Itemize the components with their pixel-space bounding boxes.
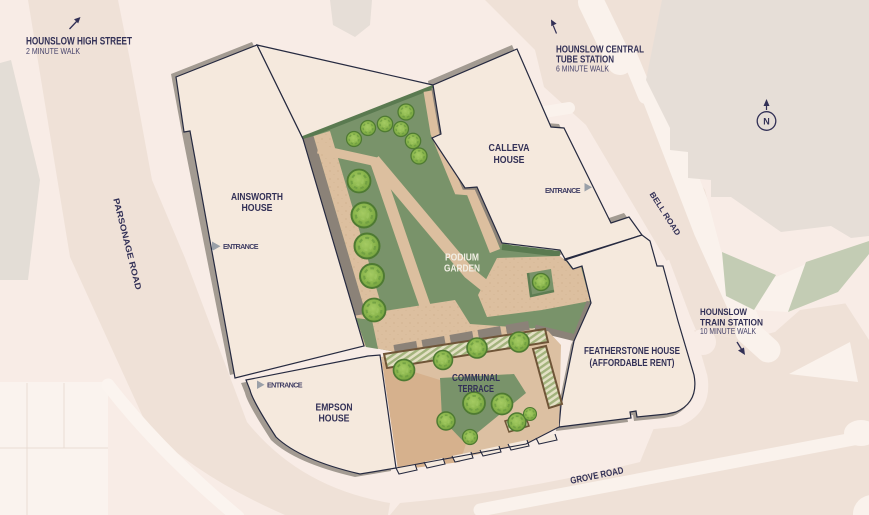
svg-text:TERRACE: TERRACE [458, 384, 494, 395]
svg-text:TRAIN STATION: TRAIN STATION [700, 318, 763, 328]
svg-text:ENTRANCE: ENTRANCE [223, 242, 259, 251]
svg-text:FEATHERSTONE HOUSE: FEATHERSTONE HOUSE [584, 345, 680, 357]
svg-text:HOUSE: HOUSE [319, 413, 350, 425]
svg-text:HOUNSLOW: HOUNSLOW [700, 307, 747, 317]
svg-text:10 MINUTE WALK: 10 MINUTE WALK [700, 327, 757, 336]
svg-text:ENTRANCE: ENTRANCE [267, 381, 303, 390]
svg-text:N: N [763, 117, 770, 127]
svg-text:PODIUM: PODIUM [445, 253, 479, 264]
svg-text:HOUSE: HOUSE [494, 154, 525, 166]
svg-text:HOUNSLOW HIGH STREET: HOUNSLOW HIGH STREET [26, 36, 132, 48]
svg-text:ENTRANCE: ENTRANCE [545, 186, 581, 195]
svg-text:CALLEVA: CALLEVA [489, 142, 530, 154]
svg-text:HOUSE: HOUSE [242, 202, 273, 214]
svg-text:2 MINUTE WALK: 2 MINUTE WALK [26, 47, 81, 56]
svg-text:(AFFORDABLE RENT): (AFFORDABLE RENT) [590, 357, 675, 369]
svg-text:COMMUNAL: COMMUNAL [452, 373, 500, 384]
svg-text:GARDEN: GARDEN [444, 264, 480, 275]
svg-text:6 MINUTE WALK: 6 MINUTE WALK [556, 65, 610, 74]
